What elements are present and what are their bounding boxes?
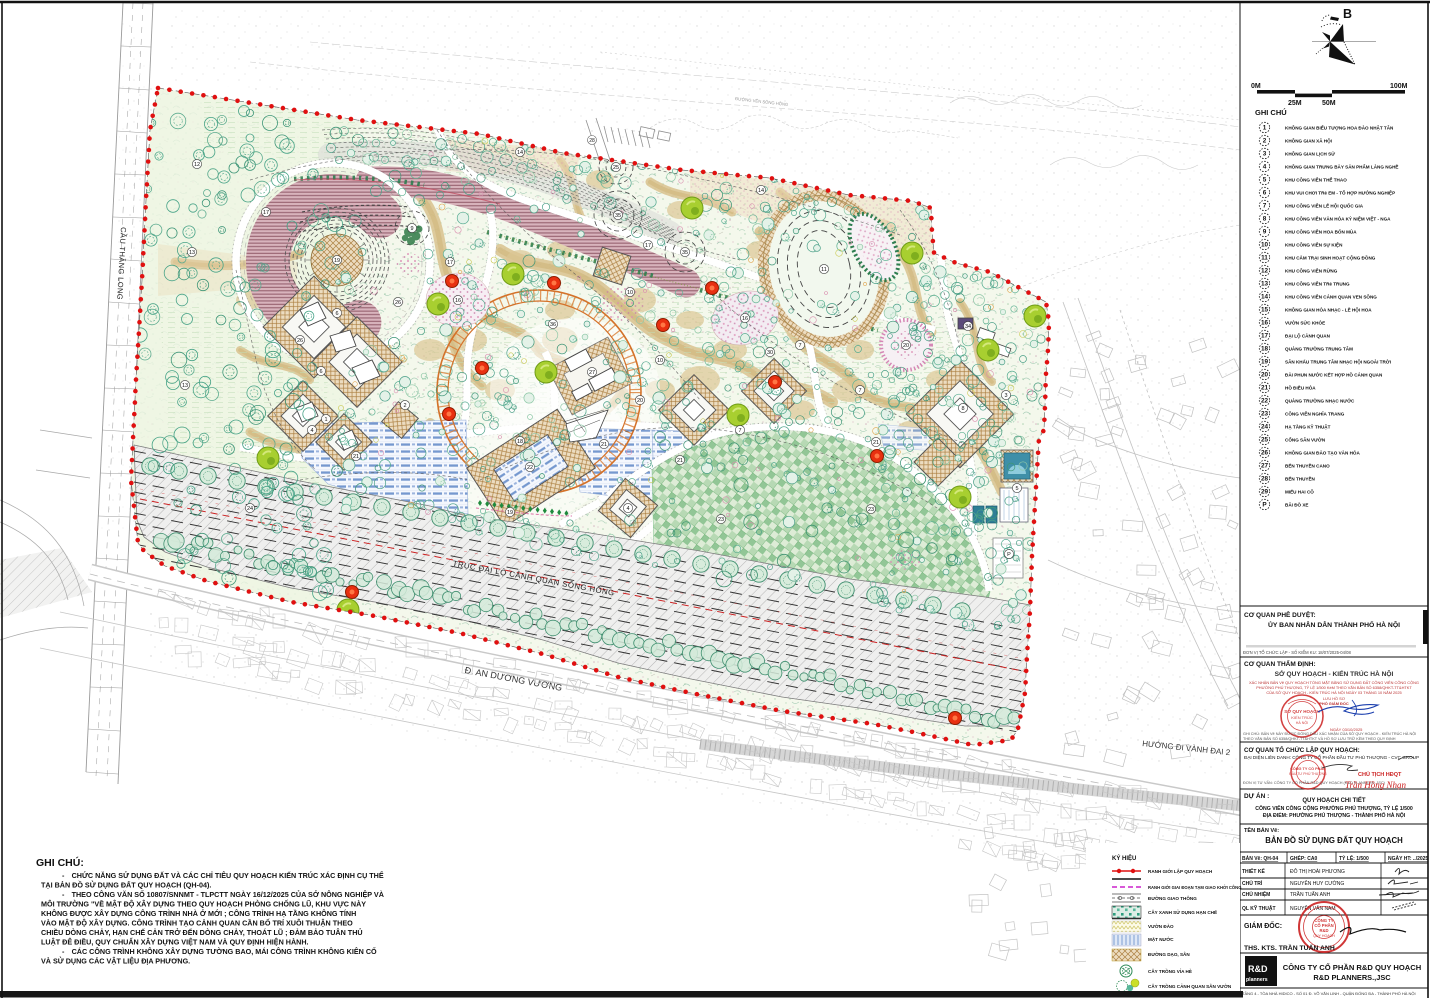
svg-text:TỶ LỆ: 1/500: TỶ LỆ: 1/500 [1339,854,1369,862]
svg-text:5: 5 [1015,486,1018,492]
svg-text:28: 28 [589,138,595,144]
svg-text:PHÓ GIÁM ĐỐC: PHÓ GIÁM ĐỐC [1319,701,1349,706]
svg-text:KHU CẮM TRẠI SINH HOẠT CỘNG ĐỒ: KHU CẮM TRẠI SINH HOẠT CỘNG ĐỒNG [1285,254,1376,261]
svg-text:21: 21 [677,458,683,464]
svg-text:HỒ ĐIỀU HÒA: HỒ ĐIỀU HÒA [1285,384,1316,391]
svg-text:TRẦN TUẤN ANH: TRẦN TUẤN ANH [1290,891,1331,898]
svg-text:17: 17 [263,210,269,216]
svg-text:RANH GIỚI GIAI ĐOẠN TẠM GIAO K: RANH GIỚI GIAI ĐOẠN TẠM GIAO KHỞI CÔNG [1148,885,1241,890]
svg-text:GHI CHÚ:: GHI CHÚ: [36,856,84,869]
svg-text:9: 9 [1263,229,1267,236]
svg-text:26: 26 [1261,450,1269,457]
svg-text:SÂN KHẤU TRUNG TÂM NHẠC HỘI NG: SÂN KHẤU TRUNG TÂM NHẠC HỘI NGOÀI TRỜI [1285,358,1391,365]
svg-text:ĐỖ THỊ HOÀI PHƯƠNG: ĐỖ THỊ HOÀI PHƯƠNG [1290,868,1345,875]
svg-text:GHI CHÚ: BẢN Vẽ NÀY ĐƯỢC ĐÓNG: GHI CHÚ: BẢN Vẽ NÀY ĐƯỢC ĐÓNG DẤU XÁC NH… [1243,731,1416,736]
svg-text:BẢN ĐỒ SỬ DỤNG ĐẤT QUY HOẠCH: BẢN ĐỒ SỬ DỤNG ĐẤT QUY HOẠCH [1265,835,1403,845]
svg-text:10: 10 [627,290,633,296]
svg-text:THEO VĂN BẢN SỐ 6358/QHKT-TT&H: THEO VĂN BẢN SỐ 6358/QHKT-TT&HTKT VÀ HỒ … [1243,736,1396,741]
svg-text:MẶT NƯỚC: MẶT NƯỚC [1148,935,1174,942]
svg-text:7: 7 [738,428,741,434]
svg-text:KÝ HIỆU: KÝ HIỆU [1112,854,1136,862]
svg-text:19: 19 [334,258,340,264]
svg-text:14: 14 [758,188,764,194]
svg-text:12: 12 [1261,268,1269,275]
svg-text:22: 22 [527,465,533,471]
svg-text:TẦNG 4 - TÒA NHÀ HIDICO - SỐ 0: TẦNG 4 - TÒA NHÀ HIDICO - SỐ 01 Đ. VÕ VĂ… [1242,991,1416,996]
svg-text:QUY HOẠCH: QUY HOẠCH [1313,934,1335,938]
svg-text:16: 16 [742,316,748,322]
svg-text:CÂY TRỒNG CẢNH QUAN SÂN VƯỜN: CÂY TRỒNG CẢNH QUAN SÂN VƯỜN [1148,982,1232,989]
svg-text:R&D: R&D [1248,964,1268,974]
svg-text:100M: 100M [1390,83,1408,90]
svg-text:CÔNG VIÊN NGHĨA TRANG: CÔNG VIÊN NGHĨA TRANG [1285,410,1345,417]
svg-text:CƠ QUAN PHÊ DUYỆT:: CƠ QUAN PHÊ DUYỆT: [1244,610,1316,619]
svg-text:8: 8 [961,406,964,412]
svg-text:29: 29 [1261,489,1269,496]
svg-text:VƯỜN SỨC KHỎE: VƯỜN SỨC KHỎE [1285,319,1325,326]
svg-text:11: 11 [1261,255,1268,262]
svg-text:17: 17 [645,243,651,249]
svg-text:CHIỀU DÒNG CHẢY, HẠN CHẾ CẢN T: CHIỀU DÒNG CHẢY, HẠN CHẾ CẢN TRỞ ĐẾN DÒN… [41,927,363,937]
svg-text:7: 7 [798,343,801,349]
svg-text:CÔNG VIÊN CÔNG CỘNG PHƯỜNG PHÚ: CÔNG VIÊN CÔNG CỘNG PHƯỜNG PHÚ THƯỢNG, T… [1255,804,1413,812]
svg-text:NGÀY HT: ../2025: NGÀY HT: ../2025 [1388,855,1428,862]
svg-text:21: 21 [873,440,879,446]
svg-text:NGUYỄN HUY CƯỜNG: NGUYỄN HUY CƯỜNG [1290,880,1344,887]
svg-text:KHU CÔNG VIÊN LỄ HỘI QUỐC GIA: KHU CÔNG VIÊN LỄ HỘI QUỐC GIA [1285,202,1364,209]
svg-text:- CHỨC NĂNG SỬ DỤNG ĐẤT VÀ CÁC: - CHỨC NĂNG SỬ DỤNG ĐẤT VÀ CÁC CHỈ TIÊU … [62,870,384,880]
svg-text:Trần Hồng Nhạn: Trần Hồng Nhạn [1345,780,1407,790]
svg-text:9: 9 [410,226,413,232]
svg-text:QUY HOẠCH CHI TIẾT: QUY HOẠCH CHI TIẾT [1302,797,1366,804]
svg-text:GHÉP: CA0: GHÉP: CA0 [1290,854,1317,862]
svg-text:MÔI TRƯỜNG "VỀ MẬT ĐỘ XÂY DỰNG: MÔI TRƯỜNG "VỀ MẬT ĐỘ XÂY DỰNG THEO QUY … [41,899,366,909]
svg-text:36: 36 [550,322,556,328]
svg-text:TẠI BẢN ĐỒ SỬ DỤNG ĐẤT QUY HOẠ: TẠI BẢN ĐỒ SỬ DỤNG ĐẤT QUY HOẠCH (QH-04)… [41,880,211,890]
svg-text:CÔNG TY CỔ PHẦN R&D QUY HOẠCH: CÔNG TY CỔ PHẦN R&D QUY HOẠCH [1283,962,1422,972]
svg-text:17: 17 [447,260,453,266]
svg-text:KHU CÔNG VIÊN THỂ THAO: KHU CÔNG VIÊN THỂ THAO [1285,176,1347,183]
svg-text:21: 21 [1261,385,1269,392]
svg-text:25M: 25M [1288,100,1302,107]
svg-text:VƯỜN ĐÀO: VƯỜN ĐÀO [1148,922,1174,929]
svg-text:4: 4 [1263,164,1267,171]
svg-text:KHÔNG GIAN LỊCH SỬ: KHÔNG GIAN LỊCH SỬ [1285,150,1335,157]
svg-text:30: 30 [767,350,773,356]
svg-text:CÂY TRỒNG VỈA HÈ: CÂY TRỒNG VỈA HÈ [1148,967,1192,974]
svg-text:23: 23 [718,517,724,523]
svg-text:20: 20 [637,398,643,404]
svg-text:QUẢNG TRƯỜNG TRUNG TÂM: QUẢNG TRƯỜNG TRUNG TÂM [1285,345,1353,352]
svg-text:CÂY XANH SỬ DỤNG HẠN CHẾ: CÂY XANH SỬ DỤNG HẠN CHẾ [1148,909,1217,915]
svg-text:KHU CÔNG VIÊN CẢNH QUAN VEN SÔ: KHU CÔNG VIÊN CẢNH QUAN VEN SÔNG [1285,293,1377,300]
svg-text:2: 2 [403,403,406,409]
svg-text:25: 25 [1261,437,1269,444]
svg-text:21: 21 [601,442,607,448]
svg-text:10: 10 [657,358,663,364]
svg-text:28: 28 [1261,476,1269,483]
svg-text:5: 5 [1263,177,1267,184]
svg-text:BÃI ĐỖ XE: BÃI ĐỖ XE [1285,502,1308,508]
svg-text:4: 4 [626,506,629,512]
svg-text:12: 12 [194,162,200,168]
svg-text:THIẾT KẾ: THIẾT KẾ [1242,868,1265,875]
svg-text:14: 14 [1261,294,1269,301]
svg-text:TÊN BẢN Vẽ:: TÊN BẢN Vẽ: [1244,826,1279,834]
svg-text:16: 16 [1261,320,1269,327]
svg-text:24: 24 [1261,424,1269,431]
svg-text:DỰ ÁN :: DỰ ÁN : [1244,791,1269,800]
svg-text:7: 7 [858,388,861,394]
svg-text:25: 25 [613,165,619,171]
svg-text:CỦA SỞ QUY HOẠCH - KIẾN TRÚC H: CỦA SỞ QUY HOẠCH - KIẾN TRÚC HÀ NỘI NGÀY… [1266,690,1401,695]
svg-text:14: 14 [517,150,523,156]
svg-text:6: 6 [319,369,322,375]
svg-text:RANH GIỚI LẬP QUY HOẠCH: RANH GIỚI LẬP QUY HOẠCH [1148,867,1213,874]
svg-text:QL KỸ THUẬT: QL KỸ THUẬT [1242,905,1276,912]
svg-text:8: 8 [1263,216,1267,223]
svg-text:3: 3 [1004,393,1007,399]
svg-text:22: 22 [1261,398,1269,405]
svg-text:ĐẦU TƯ PHÚ THƯỢNG: ĐẦU TƯ PHÚ THƯỢNG [1289,771,1327,776]
svg-text:KHÔNG GIAN HÒA NHẠC - LỄ HỘI H: KHÔNG GIAN HÒA NHẠC - LỄ HỘI HOA [1285,306,1372,313]
svg-text:15: 15 [1261,307,1269,314]
svg-text:HẠ TẦNG KỸ THUẬT: HẠ TẦNG KỸ THUẬT [1285,424,1331,430]
svg-text:KHÔNG ĐƯỢC XÂY DỰNG CÔNG TRÌNH: KHÔNG ĐƯỢC XÂY DỰNG CÔNG TRÌNH NHÀ Ở MỚI… [41,908,356,918]
svg-text:NGUYỄN VĂN NAM: NGUYỄN VĂN NAM [1290,905,1336,912]
svg-text:KHÔNG GIAN TRƯNG BÀY SẢN PHẨM: KHÔNG GIAN TRƯNG BÀY SẢN PHẨM LÀNG NGHỀ [1285,163,1398,170]
svg-text:ĐƯỜNG GIAO THÔNG: ĐƯỜNG GIAO THÔNG [1148,894,1197,901]
svg-text:BẾN THUYỀN: BẾN THUYỀN [1285,476,1316,482]
svg-text:CHỦ NHIỆM: CHỦ NHIỆM [1242,890,1270,898]
svg-text:KHÔNG GIAN XÃ HỘI: KHÔNG GIAN XÃ HỘI [1285,137,1332,144]
svg-text:ĐỊA ĐIỂM: PHƯỜNG PHÚ THƯỢNG -: ĐỊA ĐIỂM: PHƯỜNG PHÚ THƯỢNG - THÀNH PHỐ … [1263,811,1406,819]
svg-text:20: 20 [903,343,909,349]
svg-text:ĐẠI DIỆN LIÊN DANH: CÔNG TY CỔ: ĐẠI DIỆN LIÊN DANH: CÔNG TY CỔ PHẦN ĐẦU … [1244,753,1419,760]
svg-text:1: 1 [324,417,327,423]
svg-text:B: B [1343,7,1352,21]
svg-text:ĐÀI PHUN NƯỚC KẾT HỢP HỒ CẢNH: ĐÀI PHUN NƯỚC KẾT HỢP HỒ CẢNH QUAN [1285,371,1383,378]
svg-text:1: 1 [1263,125,1267,132]
svg-text:VÀO MẬT ĐỘ XÂY DỰNG. CÔNG TRÌN: VÀO MẬT ĐỘ XÂY DỰNG. CÔNG TRÌNH TẠO CẢNH… [41,918,353,928]
svg-text:13: 13 [182,383,188,389]
svg-text:11: 11 [821,267,827,273]
svg-text:LUẬT ĐÊ ĐIỀU, QUY CHUẨN XÂY DỰ: LUẬT ĐÊ ĐIỀU, QUY CHUẨN XÂY DỰNG VIỆT NA… [41,937,309,947]
svg-text:19: 19 [507,510,513,516]
svg-text:KHU CÔNG VIÊN SỰ KIỆN: KHU CÔNG VIÊN SỰ KIỆN [1285,241,1343,248]
svg-text:10: 10 [1261,242,1269,249]
svg-text:4: 4 [310,428,313,434]
svg-text:19: 19 [1261,359,1269,366]
svg-text:13: 13 [1261,281,1269,288]
svg-text:16: 16 [455,298,461,304]
svg-text:21: 21 [353,454,359,460]
svg-text:MIẾU HAI CÔ: MIẾU HAI CÔ [1285,488,1314,495]
svg-text:17: 17 [1261,333,1269,340]
svg-text:35: 35 [682,250,688,256]
svg-text:23: 23 [868,507,874,513]
svg-text:18: 18 [517,439,523,445]
svg-text:CÔNG TY CỔ PHẦN: CÔNG TY CỔ PHẦN [1290,766,1326,771]
svg-text:18: 18 [1261,346,1269,353]
svg-text:BẾN THUYỀN CANO: BẾN THUYỀN CANO [1285,463,1330,469]
svg-text:0M: 0M [1251,83,1261,90]
svg-text:24: 24 [247,506,253,512]
svg-text:KHU CÔNG VIÊN RỪNG: KHU CÔNG VIÊN RỪNG [1285,267,1338,274]
svg-text:ĐƠN VỊ TỔ CHỨC LẬP - SỐ KIỂM K: ĐƠN VỊ TỔ CHỨC LẬP - SỐ KIỂM KU: 18/07/2… [1243,650,1351,655]
svg-text:KHU VUI CHƠI TRẻ EM - TỔ HỢP H: KHU VUI CHƠI TRẻ EM - TỔ HỢP HƯỚNG NGHIỆ… [1285,189,1395,196]
svg-text:7: 7 [1263,203,1267,210]
svg-text:ĐẠI LỘ CẢNH QUAN: ĐẠI LỘ CẢNH QUAN [1285,332,1331,339]
svg-text:CƠ QUAN TỔ CHỨC LẬP QUY HOẠCH:: CƠ QUAN TỔ CHỨC LẬP QUY HOẠCH: [1244,747,1360,754]
svg-text:50M: 50M [1322,100,1336,107]
svg-text:6: 6 [335,311,338,317]
svg-text:BẢN Vẽ: QH-04: BẢN Vẽ: QH-04 [1242,855,1278,862]
svg-text:KHÔNG GIAN ĐÀO TẠO VĂN HÓA: KHÔNG GIAN ĐÀO TẠO VĂN HÓA [1285,449,1360,456]
svg-text:- CÁC CÔNG TRÌNH KHÔNG XÂY DỰN: - CÁC CÔNG TRÌNH KHÔNG XÂY DỰNG TƯỜNG BA… [62,946,377,956]
svg-text:KIẾN TRÚC: KIẾN TRÚC [1291,715,1313,720]
svg-text:HÀ NỘI: HÀ NỘI [1296,720,1308,725]
svg-text:KHU CÔNG VIÊN TRẻ TRUNG: KHU CÔNG VIÊN TRẻ TRUNG [1285,280,1350,287]
svg-text:P: P [1007,552,1011,558]
svg-text:6: 6 [1263,190,1267,197]
svg-text:planners: planners [1246,977,1268,983]
svg-text:13: 13 [189,250,195,256]
svg-text:35: 35 [615,213,621,219]
svg-text:P: P [1262,502,1267,509]
svg-text:KHÔNG GIAN BIỂU TƯỢNG HOA ĐÀO: KHÔNG GIAN BIỂU TƯỢNG HOA ĐÀO NHẬT TÂN [1285,124,1394,131]
svg-text:CỔNG SÂN VƯỜN: CỔNG SÂN VƯỜN [1285,436,1326,443]
svg-text:CHỦ TỊCH HĐQT: CHỦ TỊCH HĐQT [1358,771,1402,778]
svg-text:2: 2 [1263,138,1267,145]
svg-text:VÀ SỬ DỤNG CÁC VẬT LIỆU ĐỊA PH: VÀ SỬ DỤNG CÁC VẬT LIỆU ĐỊA PHƯƠNG. [41,957,190,966]
svg-text:R&D PLANNERS.,JSC: R&D PLANNERS.,JSC [1313,973,1391,982]
svg-text:20: 20 [1261,372,1269,379]
svg-text:ĐƯỜNG DẠO, SÂN: ĐƯỜNG DẠO, SÂN [1148,950,1190,957]
svg-text:KHU CÔNG VIÊN HOA BỐN MÙA: KHU CÔNG VIÊN HOA BỐN MÙA [1285,228,1357,235]
svg-text:26: 26 [297,338,303,344]
svg-text:27: 27 [1261,463,1269,470]
svg-text:CHỦ TRÌ: CHỦ TRÌ [1242,879,1263,887]
svg-text:CƠ QUAN THẨM ĐỊNH:: CƠ QUAN THẨM ĐỊNH: [1244,659,1316,668]
svg-text:QUẢNG TRƯỜNG NHẠC NƯỚC: QUẢNG TRƯỜNG NHẠC NƯỚC [1285,397,1355,404]
svg-text:27: 27 [589,370,595,376]
svg-text:GHI CHÚ: GHI CHÚ [1255,108,1287,117]
svg-text:R&D: R&D [1319,928,1328,933]
svg-text:34: 34 [965,324,971,330]
svg-text:26: 26 [395,300,401,306]
svg-text:SỞ QUY HOẠCH: SỞ QUY HOẠCH [1284,708,1320,714]
svg-text:- THEO CÔNG VĂN SỐ 10807/SNNMT: - THEO CÔNG VĂN SỐ 10807/SNNMT - TLPCTT … [62,889,384,899]
svg-text:23: 23 [1261,411,1269,418]
svg-text:3: 3 [1263,151,1267,158]
svg-text:KHU CÔNG VIÊN VĂN HÓA KỶ NIỆM: KHU CÔNG VIÊN VĂN HÓA KỶ NIỆM VIỆT - NGA [1285,215,1391,222]
